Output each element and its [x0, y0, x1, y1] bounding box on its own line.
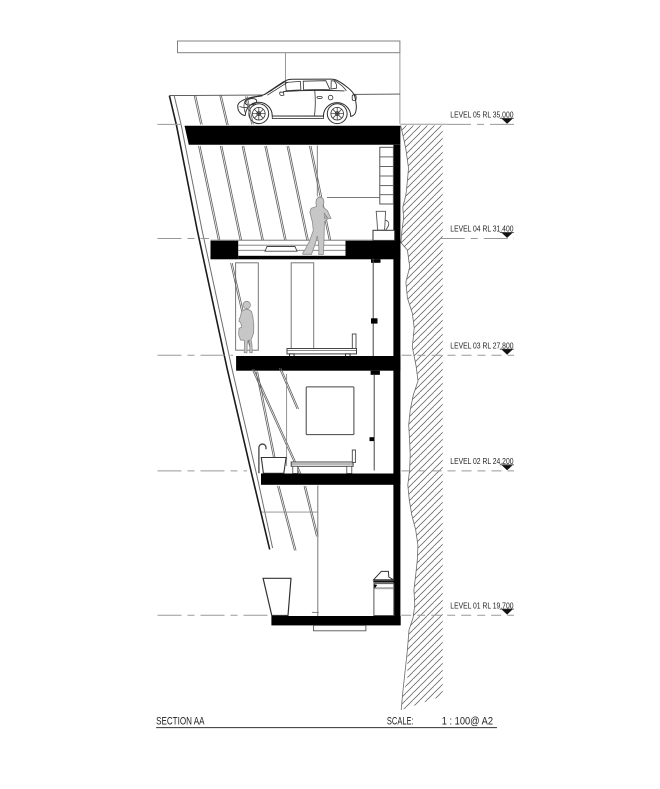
svg-text:LEVEL 05 RL 35.000: LEVEL 05 RL 35.000 [450, 110, 513, 120]
svg-text:1 : 100@ A2: 1 : 100@ A2 [442, 715, 493, 727]
svg-text:SECTION AA: SECTION AA [156, 715, 205, 727]
svg-text:LEVEL 03 RL 27.800: LEVEL 03 RL 27.800 [450, 340, 513, 350]
svg-text:LEVEL 01 RL 19.700: LEVEL 01 RL 19.700 [450, 600, 513, 610]
svg-text:SCALE:: SCALE: [387, 715, 414, 727]
svg-text:LEVEL 02 RL 24.200: LEVEL 02 RL 24.200 [450, 456, 513, 466]
svg-text:LEVEL 04 RL 31.400: LEVEL 04 RL 31.400 [450, 224, 513, 234]
